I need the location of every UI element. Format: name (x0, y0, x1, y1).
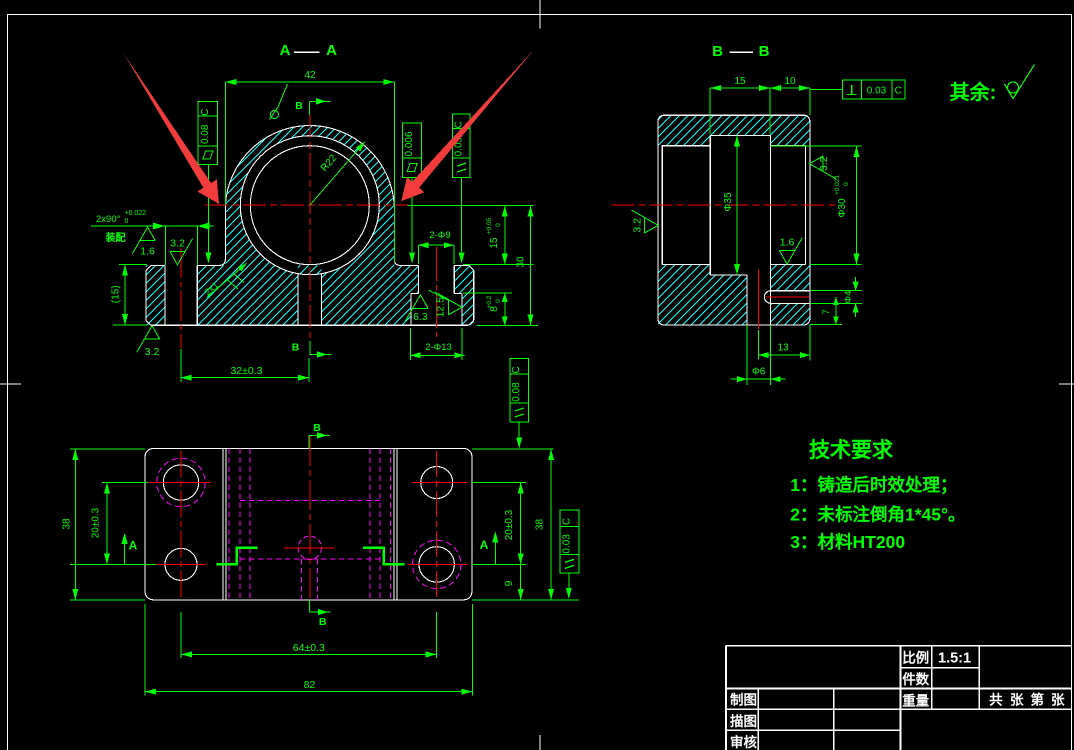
svg-text:9: 9 (504, 580, 515, 586)
svg-text:3.2: 3.2 (170, 237, 185, 249)
svg-text:42: 42 (304, 70, 316, 81)
svg-text:0.006: 0.006 (404, 131, 415, 156)
svg-text:B: B (712, 43, 723, 60)
svg-text:B: B (319, 616, 327, 628)
svg-text:1.6: 1.6 (780, 237, 795, 249)
svg-text:B: B (313, 422, 321, 434)
svg-text:C: C (562, 518, 573, 525)
svg-text:15: 15 (489, 237, 500, 249)
svg-text:重量: 重量 (902, 693, 929, 709)
svg-text:82: 82 (304, 679, 316, 691)
svg-text:30: 30 (516, 256, 527, 268)
svg-text:描图: 描图 (730, 713, 757, 729)
svg-text:64±0.3: 64±0.3 (293, 642, 325, 654)
svg-text:15: 15 (734, 76, 746, 87)
svg-text:3.2: 3.2 (632, 218, 644, 233)
svg-text:1：铸造后时效处理；: 1：铸造后时效处理； (790, 475, 957, 495)
svg-text:1.5:1: 1.5:1 (938, 651, 971, 667)
svg-text:张: 张 (1010, 693, 1024, 708)
svg-text:B: B (759, 43, 770, 60)
svg-text:B: B (292, 342, 300, 354)
svg-text:3.2: 3.2 (818, 156, 830, 171)
svg-text:+0.021: +0.021 (834, 175, 841, 195)
svg-text:装配: 装配 (105, 231, 126, 244)
svg-text:0.08: 0.08 (200, 124, 211, 144)
svg-text:6.3: 6.3 (413, 311, 428, 323)
svg-text:2-Φ13: 2-Φ13 (425, 342, 452, 353)
svg-text:Φ4: Φ4 (843, 291, 854, 304)
svg-text:B: B (295, 100, 303, 112)
svg-text:38: 38 (62, 518, 73, 530)
svg-text:38: 38 (535, 519, 546, 531)
svg-text:C: C (511, 366, 522, 373)
svg-text:12.5: 12.5 (434, 297, 446, 318)
svg-text:1.6: 1.6 (140, 246, 155, 258)
svg-text:2x90°: 2x90° (96, 214, 121, 225)
svg-text:0: 0 (843, 182, 850, 188)
svg-text:0: 0 (495, 223, 502, 229)
svg-text:0.08: 0.08 (511, 382, 522, 402)
svg-text:共: 共 (989, 692, 1003, 708)
svg-text:0: 0 (495, 299, 502, 305)
svg-text:制图: 制图 (730, 692, 757, 708)
svg-text:0.03: 0.03 (867, 86, 887, 97)
svg-text:+0.2: +0.2 (486, 295, 493, 308)
svg-text:20±0.3: 20±0.3 (91, 507, 102, 538)
svg-text:+0.05: +0.05 (486, 217, 493, 234)
svg-text:+0.022: +0.022 (125, 210, 147, 217)
svg-text:3：材料HT200: 3：材料HT200 (790, 532, 905, 552)
svg-text:A: A (280, 42, 291, 59)
svg-text:7: 7 (821, 309, 832, 314)
svg-text:0: 0 (125, 218, 129, 225)
svg-text:件数: 件数 (902, 671, 929, 687)
svg-text:其余:: 其余: (950, 80, 997, 104)
svg-text:Φ35: Φ35 (723, 192, 734, 212)
svg-text:10: 10 (784, 76, 796, 87)
svg-text:Φ30: Φ30 (837, 198, 848, 218)
svg-text:技术要求: 技术要求 (809, 439, 893, 462)
svg-text:审核: 审核 (730, 734, 758, 750)
svg-text:A: A (480, 538, 489, 552)
svg-text:A: A (129, 539, 138, 553)
svg-text:C: C (200, 108, 211, 115)
svg-text:2-Φ9: 2-Φ9 (429, 230, 450, 241)
svg-text:32±0.3: 32±0.3 (230, 365, 262, 377)
svg-text:Φ6: Φ6 (752, 367, 766, 378)
svg-text:第: 第 (1031, 692, 1045, 708)
svg-text:A: A (326, 42, 337, 59)
svg-text:0.03: 0.03 (562, 534, 573, 554)
svg-text:2：未标注倒角1*45°。: 2：未标注倒角1*45°。 (790, 505, 965, 525)
svg-text:3.2: 3.2 (145, 346, 160, 358)
svg-text:C: C (895, 86, 902, 97)
svg-text:20±0.3: 20±0.3 (504, 509, 515, 540)
svg-text:张: 张 (1051, 693, 1065, 708)
svg-text:(15): (15) (111, 285, 122, 303)
svg-text:比例: 比例 (902, 650, 929, 666)
svg-text:13: 13 (777, 343, 789, 354)
